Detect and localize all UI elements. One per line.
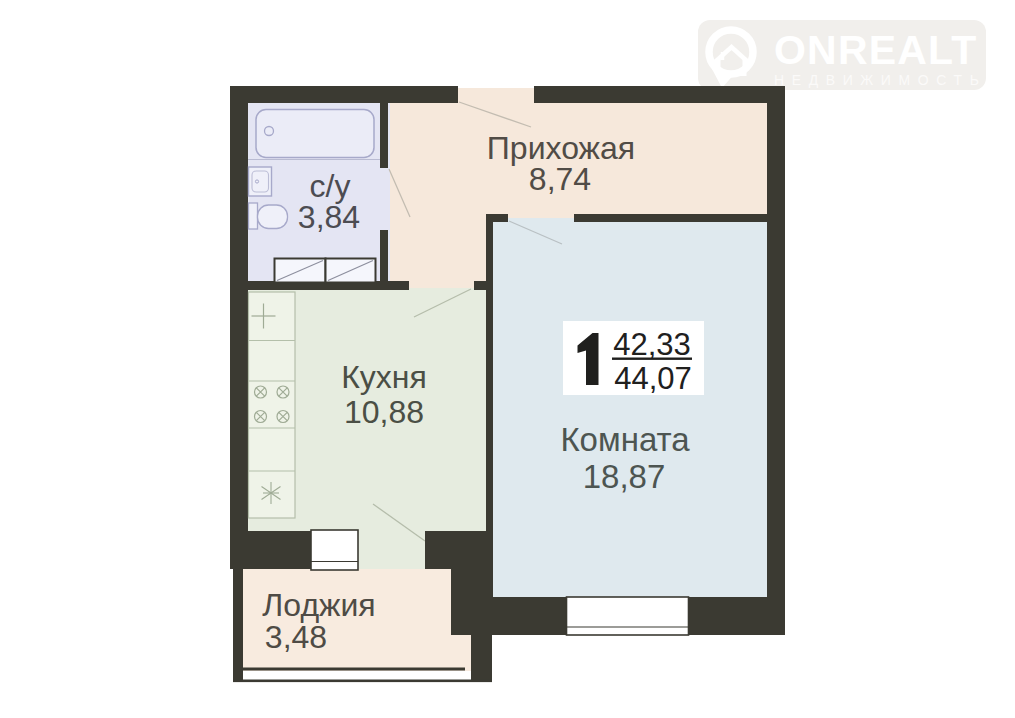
svg-text:Кухня: Кухня: [341, 359, 427, 395]
svg-text:3,84: 3,84: [298, 199, 360, 235]
svg-text:8,74: 8,74: [529, 161, 591, 197]
svg-text:42,33: 42,33: [613, 327, 691, 362]
svg-text:44,07: 44,07: [614, 361, 692, 396]
svg-text:Лоджия: Лоджия: [262, 587, 375, 623]
svg-text:10,88: 10,88: [344, 394, 424, 430]
svg-text:НЕДВИЖИМОСТЬ: НЕДВИЖИМОСТЬ: [774, 72, 986, 88]
svg-text:ONREALT: ONREALT: [774, 27, 978, 73]
svg-text:18,87: 18,87: [583, 458, 666, 495]
svg-text:Комната: Комната: [560, 421, 690, 458]
svg-text:3,48: 3,48: [265, 619, 327, 655]
